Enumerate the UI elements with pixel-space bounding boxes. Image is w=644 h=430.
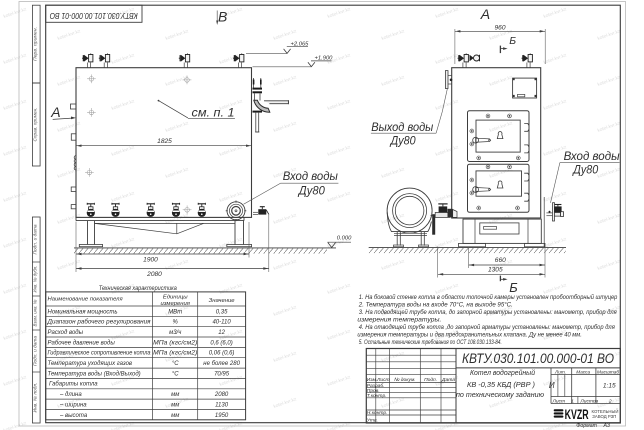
svg-text:А: А bbox=[50, 104, 60, 120]
svg-text:Ду80: Ду80 bbox=[297, 183, 325, 197]
svg-text:%: % bbox=[173, 320, 179, 326]
svg-text:Номинальная мощность: Номинальная мощность bbox=[48, 309, 118, 315]
svg-text:Н.контр.: Н.контр. bbox=[367, 410, 388, 416]
svg-text:1. На боковой стенке котла в: 1. На боковой стенке котла в области топ… bbox=[359, 294, 618, 301]
svg-text:1:15: 1:15 bbox=[603, 382, 616, 389]
svg-text:Наименование показателя: Наименование показателя bbox=[48, 297, 124, 303]
svg-text:измерения температуры.: измерения температуры. bbox=[357, 317, 441, 324]
svg-text:мм: мм bbox=[171, 413, 179, 419]
svg-text:Габариты котла: Габариты котла bbox=[49, 382, 98, 388]
svg-text:5. Остальные технические треб: 5. Остальные технические требования по О… bbox=[359, 339, 502, 346]
svg-text:0,35: 0,35 bbox=[216, 309, 228, 315]
svg-text:КВ -0,35 КБД (РВР ): КВ -0,35 КБД (РВР ) bbox=[467, 380, 535, 389]
svg-text:КВТУ.030.101.00.000-01 ВО: КВТУ.030.101.00.000-01 ВО bbox=[50, 11, 138, 20]
svg-text:Лист: Лист bbox=[376, 377, 390, 383]
svg-text:0,6 (6,0): 0,6 (6,0) bbox=[210, 340, 232, 346]
svg-text:1900: 1900 bbox=[143, 257, 158, 264]
svg-text:0.000: 0.000 bbox=[337, 236, 352, 242]
svg-text:Справ. примен.: Справ. примен. bbox=[33, 108, 38, 142]
svg-text:1305: 1305 bbox=[488, 266, 503, 273]
svg-text:Инв. № подл.: Инв. № подл. bbox=[33, 383, 38, 413]
svg-text:+2.065: +2.065 bbox=[291, 41, 310, 47]
svg-text:Масштаб: Масштаб bbox=[597, 369, 619, 374]
svg-text:мм: мм bbox=[171, 392, 179, 398]
svg-text:Гидравлическое сопротивление к: Гидравлическое сопротивление котла bbox=[48, 351, 152, 357]
svg-text:70/95: 70/95 bbox=[214, 371, 230, 377]
svg-text:660: 660 bbox=[495, 257, 506, 264]
svg-text:мм: мм bbox=[171, 402, 179, 408]
svg-text:Рабочее давление воды: Рабочее давление воды bbox=[48, 340, 116, 346]
svg-text:Подп. и дата: Подп. и дата bbox=[33, 224, 38, 255]
svg-text:1130: 1130 bbox=[215, 402, 229, 408]
svg-text:МВт: МВт bbox=[168, 309, 182, 315]
svg-text:Котел водогрейный: Котел водогрейный bbox=[470, 368, 535, 377]
svg-text:Утв.: Утв. bbox=[367, 418, 378, 424]
svg-text:1: 1 bbox=[571, 398, 574, 404]
svg-text:960: 960 bbox=[494, 24, 505, 31]
svg-text:Диапазон рабочего регулировани: Диапазон рабочего регулирования bbox=[46, 320, 151, 326]
svg-text:Масса: Масса bbox=[576, 369, 590, 374]
svg-text:Листов: Листов bbox=[579, 398, 598, 404]
svg-text:Температура воды (Вход/Выход): Температура воды (Вход/Выход) bbox=[48, 371, 141, 377]
svg-text:°С: °С bbox=[172, 371, 179, 377]
svg-text:Перв. примен.: Перв. примен. bbox=[33, 27, 38, 61]
svg-text:– длина: – длина bbox=[59, 392, 82, 398]
svg-text:Разраб.: Разраб. bbox=[367, 383, 385, 389]
svg-text:2. Температура воды на входе: 2. Температура воды на входе 70°С, на вы… bbox=[358, 301, 513, 308]
svg-text:– высота: – высота bbox=[59, 413, 88, 419]
svg-text:Ду80: Ду80 bbox=[571, 163, 598, 177]
svg-text:В: В bbox=[218, 9, 227, 25]
svg-text:не более 280: не более 280 bbox=[203, 361, 240, 367]
svg-text:– ширина: – ширина bbox=[59, 402, 87, 408]
svg-text:Пров.: Пров. bbox=[367, 388, 380, 394]
svg-text:°С: °С bbox=[172, 361, 179, 367]
svg-text:по техническому заданию: по техническому заданию bbox=[456, 390, 545, 399]
svg-text:Подп.: Подп. bbox=[424, 377, 437, 383]
svg-text:Единицы: Единицы bbox=[163, 294, 188, 300]
svg-text:измерения: измерения bbox=[160, 301, 190, 307]
svg-text:Взам. инв. №: Взам. инв. № bbox=[33, 299, 38, 326]
svg-text:Лит.: Лит. bbox=[554, 369, 566, 374]
svg-text:А: А bbox=[480, 6, 490, 22]
svg-text:1950: 1950 bbox=[215, 413, 229, 419]
svg-text:ЗАВОД РЗП: ЗАВОД РЗП bbox=[592, 414, 616, 419]
svg-text:МПа (кгс/см2): МПа (кгс/см2) bbox=[153, 351, 197, 357]
svg-text:МПа (кгс/см2): МПа (кгс/см2) bbox=[153, 340, 197, 346]
svg-text:2080: 2080 bbox=[146, 271, 162, 278]
svg-text:+1.900: +1.900 bbox=[315, 56, 334, 62]
svg-text:Выход воды: Выход воды bbox=[371, 120, 433, 134]
svg-text:м3/ч: м3/ч bbox=[169, 330, 181, 336]
svg-text:Изм.: Изм. bbox=[367, 377, 377, 383]
svg-text:2: 2 bbox=[608, 398, 612, 404]
svg-text:Лист: Лист bbox=[552, 398, 566, 404]
svg-text:А3: А3 bbox=[603, 423, 610, 429]
svg-text:Температура уходящих газов: Температура уходящих газов bbox=[48, 361, 133, 367]
svg-text:40-110: 40-110 bbox=[212, 320, 231, 326]
svg-text:измерения температуры и два пр: измерения температуры и два предохраните… bbox=[357, 332, 582, 339]
svg-text:3. На подводящей трубе котла,: 3. На подводящей трубе котла, до запорно… bbox=[359, 309, 618, 316]
svg-text:Расход воды: Расход воды bbox=[48, 330, 84, 336]
svg-text:Значение: Значение bbox=[209, 298, 236, 304]
svg-text:№ докум.: № докум. bbox=[394, 377, 416, 383]
svg-text:Инв. № дубл.: Инв. № дубл. bbox=[33, 266, 38, 293]
svg-text:И: И bbox=[549, 381, 555, 390]
svg-text:Техническая характеристика: Техническая характеристика bbox=[99, 285, 177, 292]
svg-text:Формат: Формат bbox=[576, 423, 597, 429]
svg-text:Т.контр.: Т.контр. bbox=[367, 393, 387, 399]
svg-text:2080: 2080 bbox=[214, 392, 229, 398]
svg-text:1825: 1825 bbox=[157, 138, 172, 145]
svg-text:Вход воды: Вход воды bbox=[283, 169, 338, 183]
svg-text:0,06 (0,6): 0,06 (0,6) bbox=[209, 351, 235, 357]
svg-text:Б: Б bbox=[509, 35, 516, 47]
svg-text:12: 12 bbox=[218, 330, 225, 336]
svg-text:KVZR: KVZR bbox=[565, 407, 589, 422]
svg-text:КВТУ.030.101.00.000-01 ВО: КВТУ.030.101.00.000-01 ВО bbox=[462, 350, 614, 366]
svg-text:Дата: Дата bbox=[441, 377, 455, 383]
svg-text:Ду80: Ду80 bbox=[389, 133, 416, 147]
svg-text:см. п. 1: см. п. 1 bbox=[192, 107, 235, 119]
svg-text:Вход воды: Вход воды bbox=[564, 149, 620, 163]
svg-text:4. На отводящей трубе котла ,: 4. На отводящей трубе котла ,до запорной… bbox=[359, 324, 616, 331]
svg-text:Подп. и дата: Подп. и дата bbox=[33, 335, 38, 366]
